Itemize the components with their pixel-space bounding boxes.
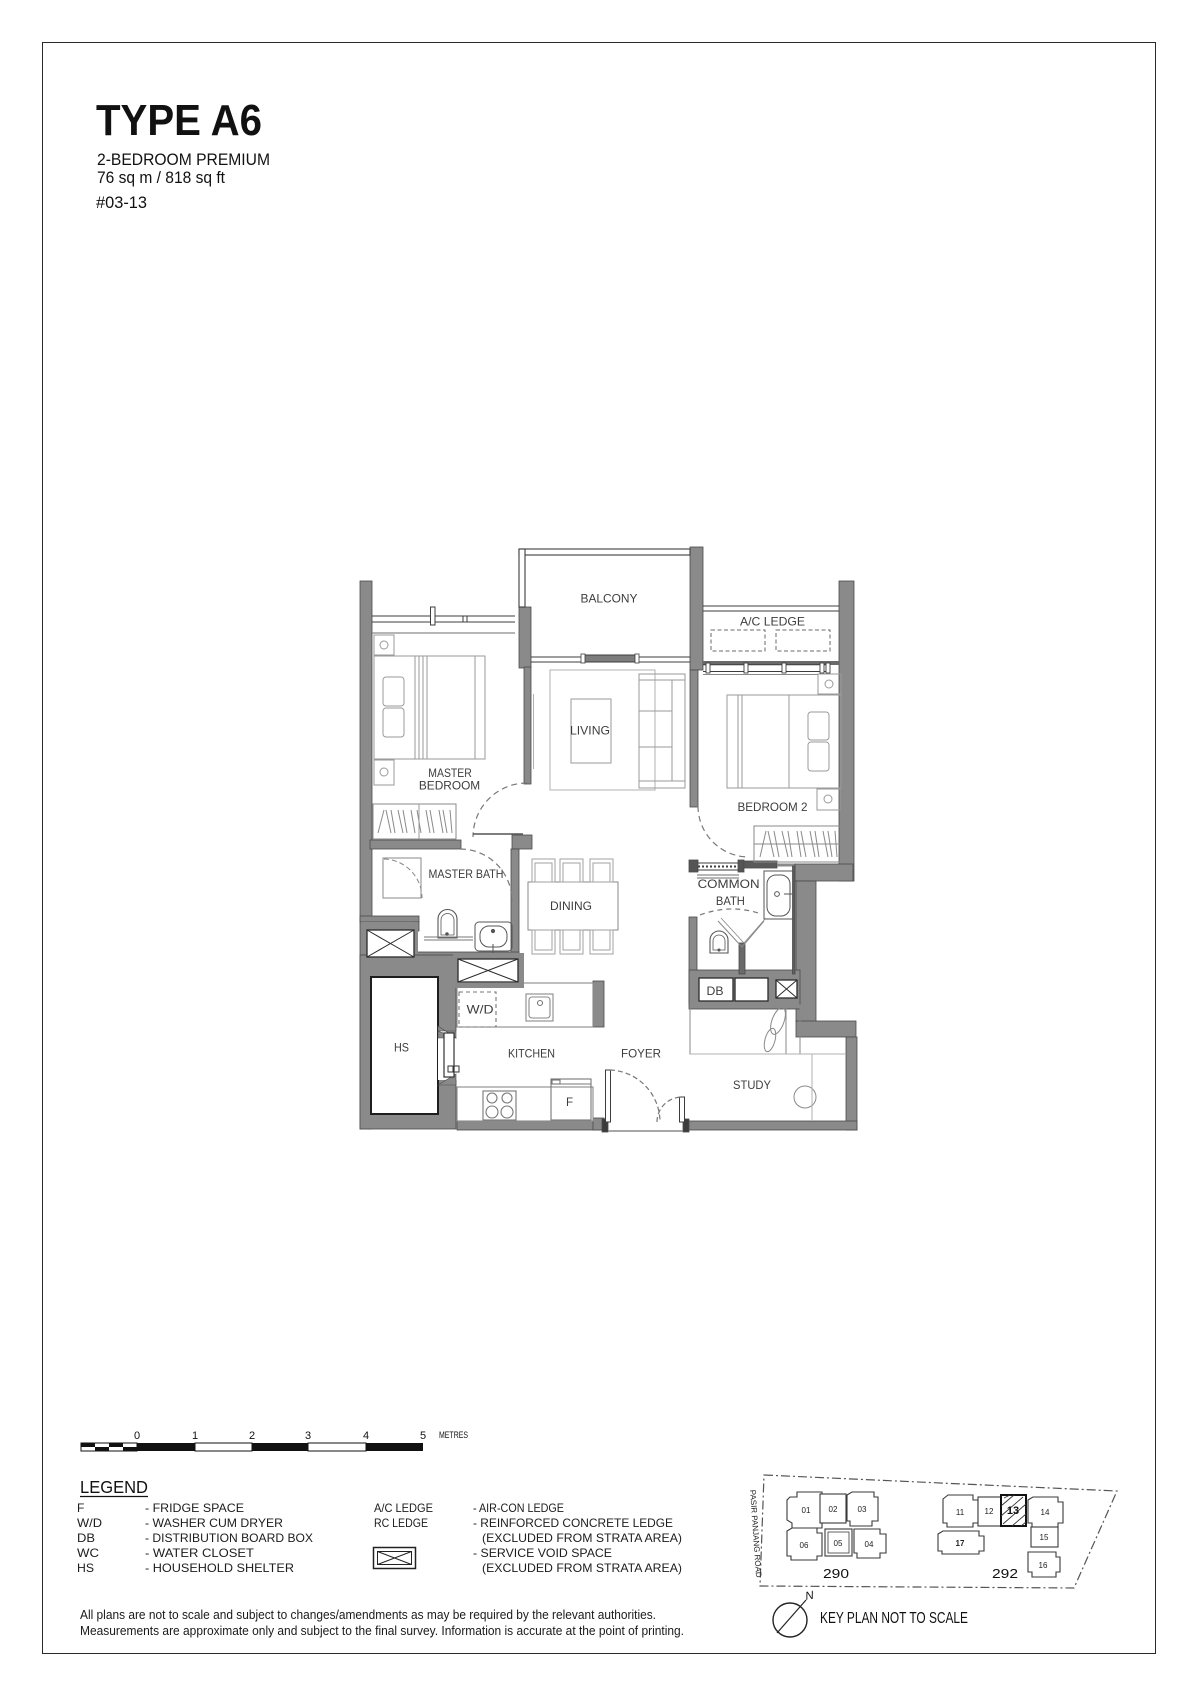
svg-text:LEGEND: LEGEND — [80, 1477, 148, 1497]
svg-text:COMMON: COMMON — [698, 878, 760, 891]
svg-text:W/D: W/D — [467, 1004, 494, 1017]
svg-text:11: 11 — [956, 1508, 965, 1517]
svg-text:- WASHER CUM DRYER: - WASHER CUM DRYER — [145, 1516, 283, 1530]
svg-text:2-BEDROOM PREMIUM: 2-BEDROOM PREMIUM — [97, 151, 270, 169]
svg-text:DB: DB — [77, 1531, 95, 1545]
svg-text:5: 5 — [420, 1430, 426, 1442]
svg-text:A/C LEDGE: A/C LEDGE — [374, 1501, 433, 1515]
svg-text:1: 1 — [192, 1430, 198, 1442]
svg-text:3: 3 — [305, 1430, 311, 1442]
svg-text:(EXCLUDED FROM STRATA AREA): (EXCLUDED FROM STRATA AREA) — [482, 1561, 682, 1575]
svg-text:WC: WC — [77, 1546, 99, 1560]
svg-text:14: 14 — [1041, 1508, 1050, 1517]
svg-text:02: 02 — [829, 1505, 838, 1514]
svg-text:13: 13 — [1007, 1505, 1019, 1517]
svg-text:HS: HS — [77, 1561, 94, 1575]
svg-text:A/C LEDGE: A/C LEDGE — [740, 616, 805, 629]
svg-text:290: 290 — [823, 1566, 849, 1581]
svg-text:BATH: BATH — [716, 895, 745, 908]
svg-text:16: 16 — [1039, 1561, 1048, 1570]
svg-text:- WATER CLOSET: - WATER CLOSET — [145, 1546, 255, 1560]
svg-text:BEDROOM 2: BEDROOM 2 — [738, 801, 808, 814]
svg-text:- SERVICE VOID SPACE: - SERVICE VOID SPACE — [473, 1546, 612, 1560]
svg-text:2: 2 — [249, 1430, 255, 1442]
svg-text:(EXCLUDED FROM STRATA AREA): (EXCLUDED FROM STRATA AREA) — [482, 1531, 682, 1545]
svg-text:FOYER: FOYER — [621, 1048, 661, 1061]
svg-text:05: 05 — [834, 1539, 843, 1548]
svg-text:- AIR-CON LEDGE: - AIR-CON LEDGE — [473, 1501, 564, 1515]
svg-text:15: 15 — [1040, 1533, 1049, 1542]
svg-text:- FRIDGE SPACE: - FRIDGE SPACE — [145, 1501, 244, 1515]
svg-text:12: 12 — [985, 1507, 994, 1516]
svg-text:06: 06 — [800, 1541, 809, 1550]
svg-text:F: F — [77, 1501, 84, 1515]
svg-text:BEDROOM: BEDROOM — [419, 780, 480, 793]
svg-text:MASTER: MASTER — [428, 767, 472, 780]
svg-text:Measurements are approximate o: Measurements are approximate only and su… — [80, 1623, 684, 1638]
svg-text:LIVING: LIVING — [570, 725, 610, 738]
svg-text:W/D: W/D — [77, 1516, 102, 1530]
svg-text:- DISTRIBUTION BOARD BOX: - DISTRIBUTION BOARD BOX — [145, 1531, 313, 1545]
svg-text:HS: HS — [394, 1042, 409, 1055]
svg-text:BALCONY: BALCONY — [581, 593, 638, 606]
svg-text:TYPE A6: TYPE A6 — [96, 96, 262, 145]
svg-text:STUDY: STUDY — [733, 1079, 771, 1092]
svg-text:N: N — [804, 1590, 815, 1603]
svg-text:292: 292 — [992, 1566, 1018, 1581]
svg-text:03: 03 — [858, 1505, 867, 1514]
svg-text:17: 17 — [956, 1539, 965, 1548]
svg-text:F: F — [566, 1096, 573, 1109]
svg-text:4: 4 — [363, 1430, 369, 1442]
svg-text:KEY PLAN NOT TO SCALE: KEY PLAN NOT TO SCALE — [820, 1610, 968, 1627]
svg-text:All plans are not to scale and: All plans are not to scale and subject t… — [80, 1607, 656, 1622]
svg-text:METRES: METRES — [439, 1430, 468, 1441]
svg-text:KITCHEN: KITCHEN — [508, 1048, 555, 1061]
svg-text:#03-13: #03-13 — [96, 194, 147, 212]
svg-text:0: 0 — [134, 1430, 140, 1442]
svg-text:MASTER BATH: MASTER BATH — [429, 868, 504, 881]
svg-text:- REINFORCED CONCRETE LEDGE: - REINFORCED CONCRETE LEDGE — [473, 1516, 673, 1530]
svg-text:DB: DB — [707, 985, 724, 998]
svg-text:DINING: DINING — [550, 900, 592, 913]
svg-text:04: 04 — [865, 1540, 874, 1549]
svg-text:76 sq m / 818 sq ft: 76 sq m / 818 sq ft — [97, 169, 225, 187]
svg-text:RC LEDGE: RC LEDGE — [374, 1516, 428, 1530]
svg-text:PASIR PANJANG ROAD: PASIR PANJANG ROAD — [748, 1490, 763, 1579]
svg-text:- HOUSEHOLD SHELTER: - HOUSEHOLD SHELTER — [145, 1561, 294, 1575]
svg-text:01: 01 — [802, 1506, 811, 1515]
